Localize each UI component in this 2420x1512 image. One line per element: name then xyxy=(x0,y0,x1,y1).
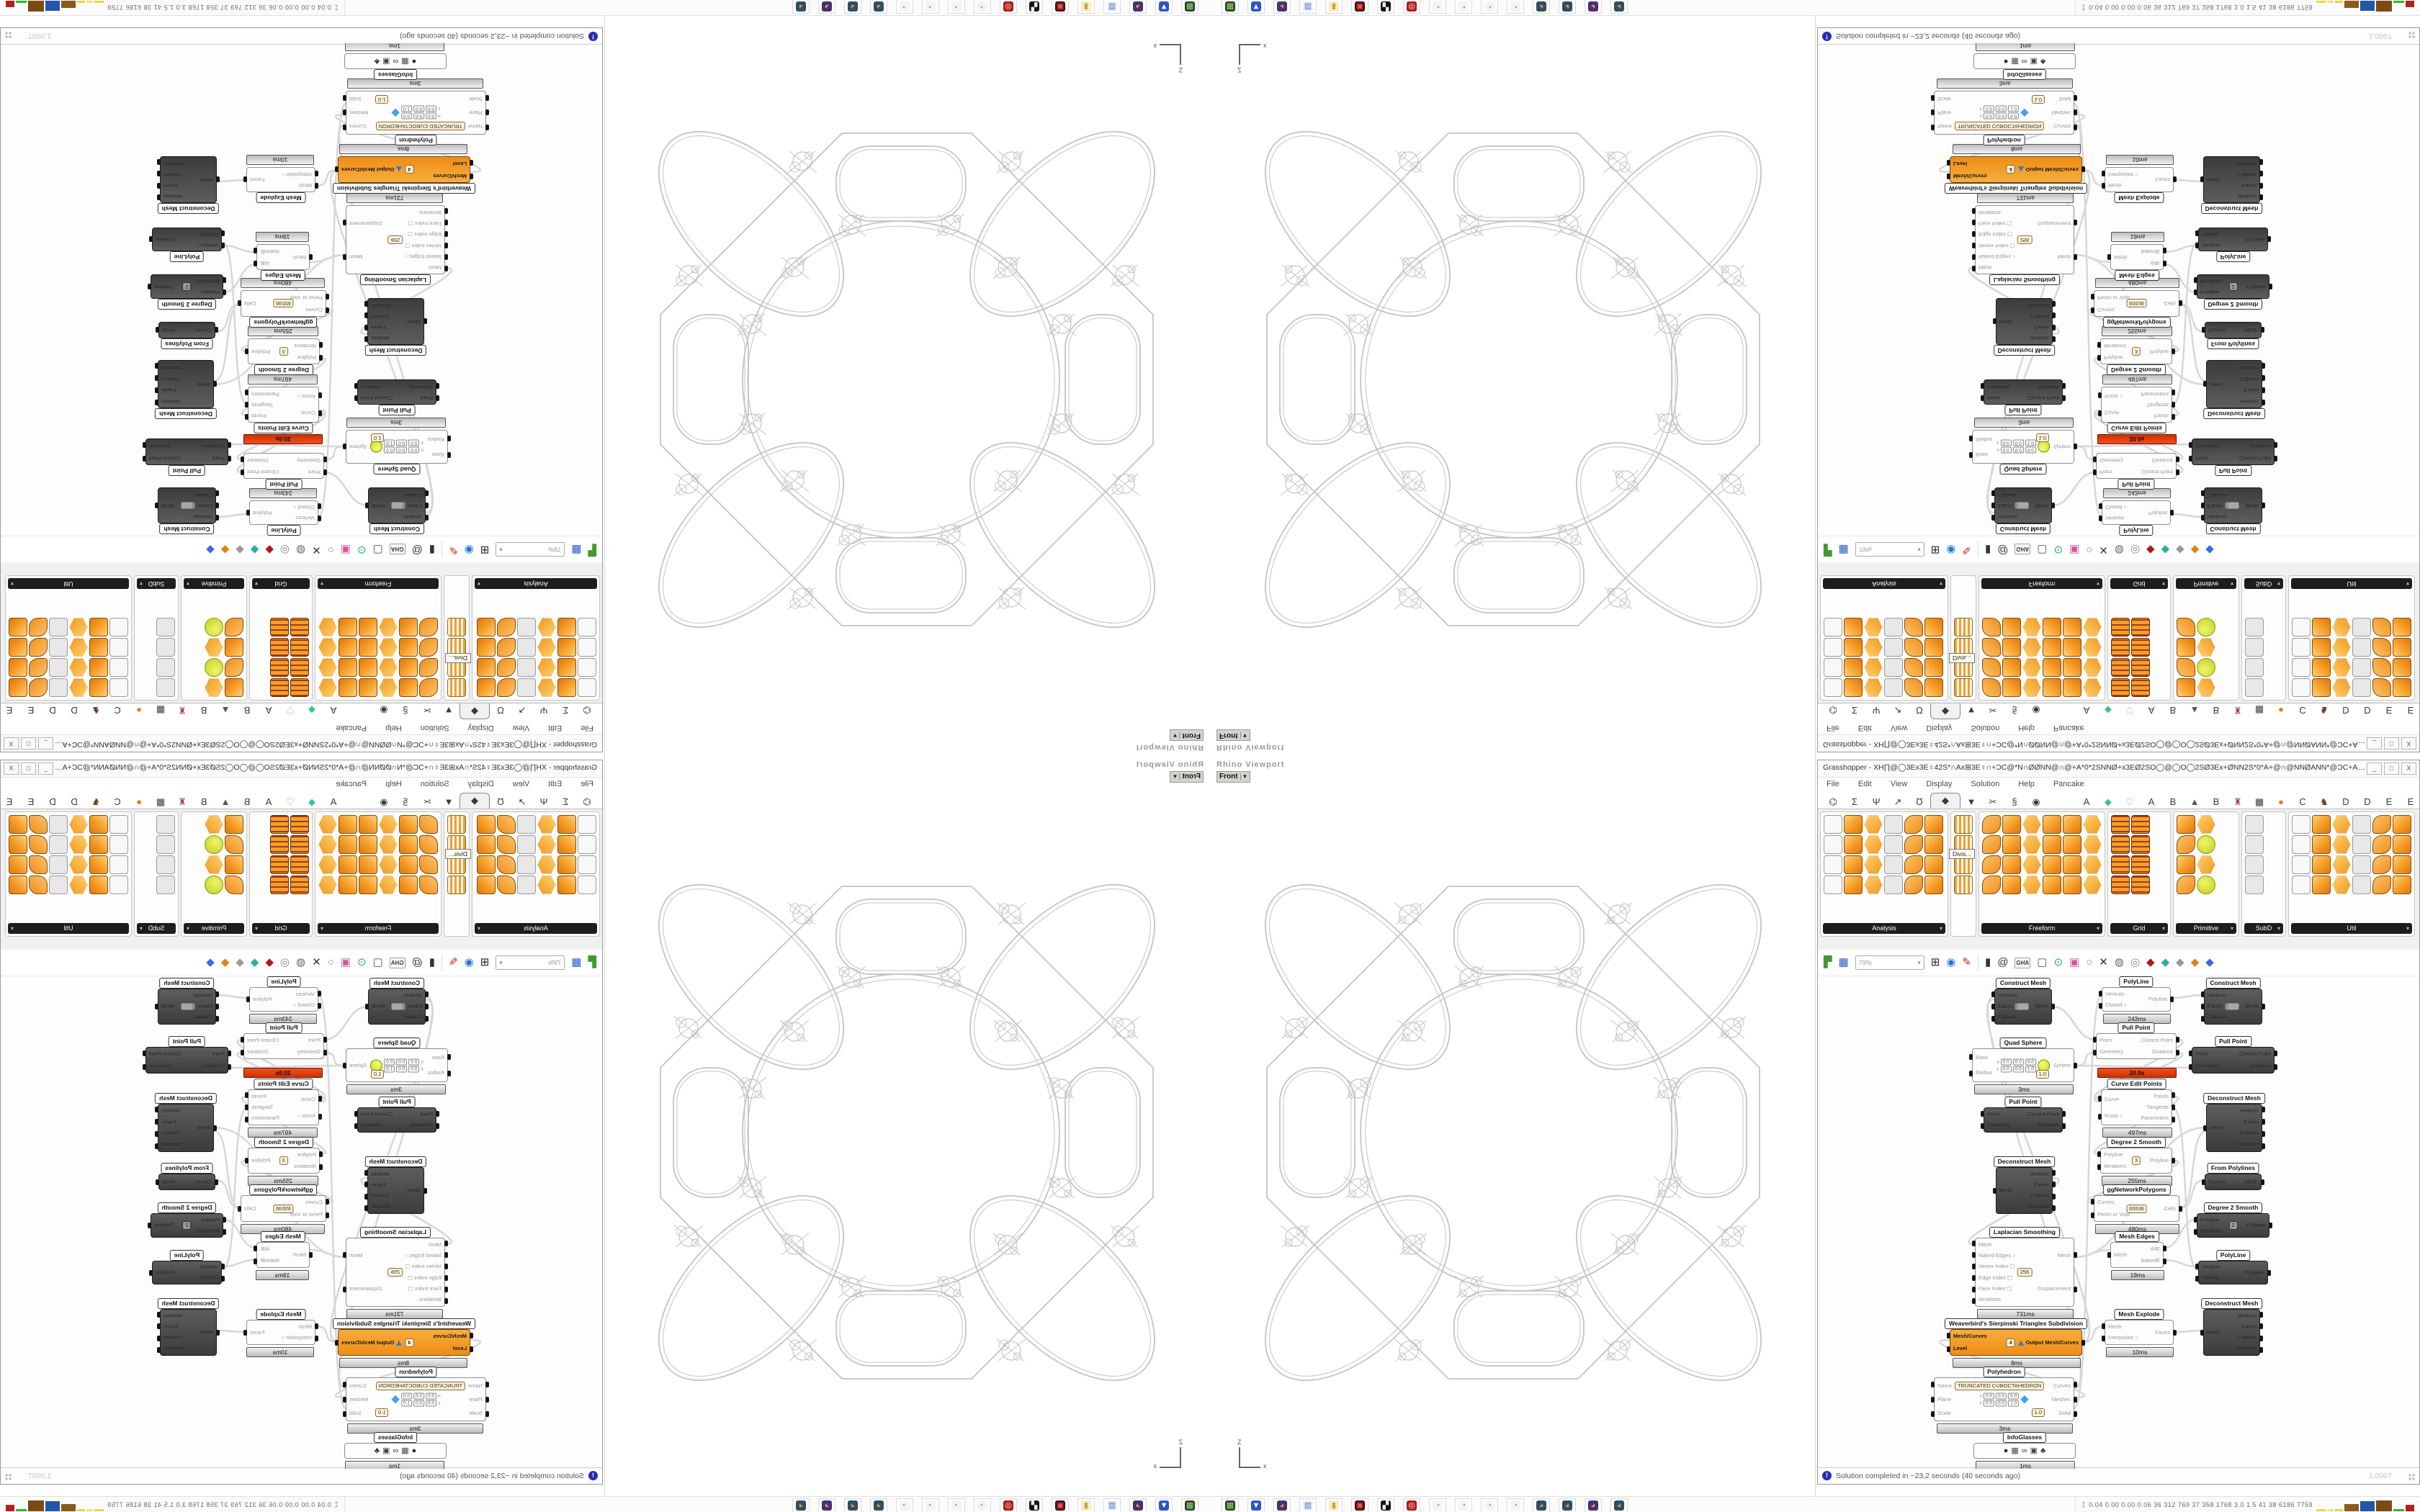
port-grip[interactable] xyxy=(254,1259,257,1264)
input-port[interactable]: Plane xyxy=(469,1397,483,1403)
port-grip[interactable] xyxy=(2074,1397,2077,1403)
panel-dropdown-icon[interactable]: ▾ xyxy=(187,578,189,589)
panel-dropdown-icon[interactable]: ▾ xyxy=(2277,923,2280,934)
gh-node-weaverbird-sierpinski[interactable]: Mesh/CurvesLevelOutput Mesh/Curves4▲ xyxy=(1950,1329,2082,1356)
component-tab-15[interactable]: B xyxy=(236,703,258,717)
taskbar-icon-system-monitor[interactable]: ▦ xyxy=(1222,1498,1239,1512)
panel-dropdown-icon[interactable]: ▾ xyxy=(140,578,143,589)
input-port[interactable]: Mesh xyxy=(408,1188,421,1194)
component-icon[interactable] xyxy=(537,658,556,677)
port-grip[interactable] xyxy=(1993,1188,1996,1194)
component-tab-11[interactable]: A xyxy=(2076,703,2097,717)
port-grip[interactable] xyxy=(1969,1054,1973,1060)
component-icon[interactable] xyxy=(109,835,128,854)
component-icon[interactable] xyxy=(2393,678,2411,697)
component-icon[interactable] xyxy=(2043,618,2061,636)
component-icon[interactable] xyxy=(1904,638,1923,657)
component-tab-2[interactable]: Ψ xyxy=(1865,703,1887,717)
component-tab-18[interactable]: ♜ xyxy=(171,703,193,717)
port-grip[interactable] xyxy=(2267,237,2271,243)
menu-item-edit[interactable]: Edit xyxy=(1858,724,1872,732)
input-port[interactable]: Iterations xyxy=(419,1297,442,1302)
port-grip[interactable] xyxy=(309,1252,313,1258)
panel-dropdown-icon[interactable]: ▾ xyxy=(11,578,14,589)
output-port[interactable]: Closest Point xyxy=(247,469,279,474)
port-grip[interactable] xyxy=(318,1096,322,1102)
rhino-viewport[interactable]: Rhino Viewport Front▼ Z x xyxy=(1210,756,1816,1496)
component-icon[interactable] xyxy=(557,658,576,677)
component-icon[interactable] xyxy=(477,618,496,636)
panel-dropdown-icon[interactable]: ▾ xyxy=(321,923,323,934)
output-port[interactable]: Closest Point xyxy=(149,1051,181,1057)
port-grip[interactable] xyxy=(425,1004,429,1009)
component-icon[interactable] xyxy=(2197,658,2215,677)
iterations-value[interactable]: 2 xyxy=(2228,1221,2237,1230)
camera-icon[interactable]: ◍ xyxy=(2115,543,2124,556)
iterations-value[interactable]: 4 xyxy=(405,166,413,174)
port-grip[interactable] xyxy=(2074,444,2077,450)
name-value[interactable]: TRUNCATED CUBOCTAHEDRON xyxy=(1955,1382,2044,1390)
input-port[interactable]: Face Index ▢ xyxy=(408,220,442,226)
gh-node-mesh-edges[interactable]: MeshAllENakedE xyxy=(2110,244,2164,270)
gh-node-mesh-explode[interactable]: MeshInterpolate ○Faces xyxy=(246,1320,315,1345)
component-tab-13[interactable]: ♡ xyxy=(2119,795,2141,809)
sketch-icon[interactable]: ✎ xyxy=(1962,956,1971,969)
component-icon[interactable] xyxy=(419,618,438,636)
component-icon[interactable] xyxy=(1824,638,1842,657)
port-grip[interactable] xyxy=(2201,1016,2205,1022)
port-grip[interactable] xyxy=(319,1151,323,1157)
component-icon[interactable] xyxy=(290,618,309,636)
port-grip[interactable] xyxy=(444,1275,448,1281)
port-grip[interactable] xyxy=(2074,1411,2077,1417)
component-icon[interactable] xyxy=(2083,855,2102,874)
component-icon[interactable] xyxy=(557,815,576,834)
port-grip[interactable] xyxy=(425,991,429,997)
component-tab-5-selected[interactable]: ◆ xyxy=(460,793,490,809)
port-grip[interactable] xyxy=(354,1111,358,1117)
port-grip[interactable] xyxy=(343,444,346,450)
menu-item-display[interactable]: Display xyxy=(1926,724,1952,732)
gh-node-polyline-mid[interactable]: VerticesClosed ○Polyline xyxy=(2102,987,2171,1012)
port-grip[interactable] xyxy=(2107,1252,2111,1258)
output-port[interactable]: Faces xyxy=(2156,1330,2170,1336)
component-icon[interactable] xyxy=(1982,815,2001,834)
component-icon[interactable] xyxy=(69,638,88,657)
port-grip[interactable] xyxy=(2091,294,2094,300)
output-port[interactable]: Mesh xyxy=(349,253,362,259)
component-icon[interactable] xyxy=(1924,876,1943,894)
component-tab-3[interactable]: ↗ xyxy=(1887,703,1909,717)
port-grip[interactable] xyxy=(436,1123,439,1129)
gh-node-quad-sphere[interactable]: BaseRadiusSphereo0.00.00.0z0.00.01.01.0 xyxy=(346,430,448,464)
taskbar-icon-calculator[interactable]: ▥ xyxy=(1103,0,1121,14)
port-grip[interactable] xyxy=(2201,1004,2205,1009)
pink-box-icon[interactable]: ▣ xyxy=(341,543,351,556)
menu-item-pancake[interactable]: Pancake xyxy=(336,724,367,732)
at-icon[interactable]: @ xyxy=(412,543,423,556)
gh-node-degree-2-smooth-right[interactable]: PolylineIterationsPolyline2 xyxy=(2197,1213,2269,1238)
component-icon[interactable] xyxy=(1924,638,1943,657)
component-icon[interactable] xyxy=(2393,855,2411,874)
port-grip[interactable] xyxy=(2074,1382,2077,1387)
output-port[interactable]: AllE xyxy=(260,1246,269,1252)
port-grip[interactable] xyxy=(238,1206,241,1212)
input-port[interactable]: Colours xyxy=(1998,492,2017,498)
port-grip[interactable] xyxy=(364,1182,368,1187)
output-port[interactable]: Vertices xyxy=(371,1171,390,1177)
component-icon[interactable] xyxy=(497,855,516,874)
output-port[interactable]: Polyline xyxy=(154,1223,173,1228)
output-port[interactable]: Solid xyxy=(2058,96,2071,102)
component-icon[interactable] xyxy=(2312,815,2331,834)
component-icon[interactable] xyxy=(2002,618,2021,636)
port-grip[interactable] xyxy=(343,1411,346,1417)
input-port[interactable]: Mesh xyxy=(1999,319,2012,325)
port-grip[interactable] xyxy=(425,490,429,496)
door-icon[interactable]: ▮ xyxy=(1985,543,1991,556)
gh-node-construct-mesh-right[interactable]: VerticesFacesColoursMesh xyxy=(158,989,216,1025)
output-port[interactable]: Displacement xyxy=(2038,1286,2071,1292)
component-icon[interactable] xyxy=(2372,638,2391,657)
pink-box-icon[interactable]: ▣ xyxy=(2069,956,2079,969)
component-icon[interactable] xyxy=(2352,815,2371,834)
port-grip[interactable] xyxy=(215,1179,218,1185)
port-grip[interactable] xyxy=(2051,1004,2055,1009)
input-port[interactable]: Interpolate ○ xyxy=(282,171,312,177)
component-icon[interactable] xyxy=(2312,638,2331,657)
component-icon[interactable] xyxy=(1844,658,1863,677)
component-icon[interactable] xyxy=(9,618,27,636)
port-grip[interactable] xyxy=(365,1004,369,1009)
component-icon[interactable] xyxy=(557,835,576,854)
component-icon[interactable] xyxy=(339,835,357,854)
port-grip[interactable] xyxy=(326,307,329,313)
component-icon[interactable] xyxy=(2372,855,2391,874)
component-icon[interactable] xyxy=(89,835,108,854)
input-port[interactable]: Iterations xyxy=(2200,279,2223,284)
output-port[interactable]: Solid xyxy=(349,1410,362,1416)
component-icon[interactable] xyxy=(477,815,496,834)
orange-gem-icon[interactable]: ◆ xyxy=(221,956,230,969)
input-port[interactable]: Curves xyxy=(2208,1179,2226,1185)
component-icon[interactable] xyxy=(359,618,377,636)
input-port[interactable]: Geometry xyxy=(2099,1049,2123,1055)
input-port[interactable]: Colours xyxy=(403,492,422,498)
menu-item-help[interactable]: Help xyxy=(385,780,402,788)
component-icon[interactable] xyxy=(2063,835,2081,854)
component-icon[interactable] xyxy=(379,876,398,894)
taskbar-icon-paint-palette[interactable]: ◔ xyxy=(1507,0,1524,14)
port-grip[interactable] xyxy=(155,1004,158,1009)
component-tab-23[interactable]: D xyxy=(2335,795,2357,809)
component-icon[interactable] xyxy=(270,855,289,874)
output-port[interactable]: Faces xyxy=(163,1324,178,1330)
component-tab-4[interactable]: Ʊ xyxy=(490,795,511,809)
taskbar-icon-paint-palette[interactable]: ◔ xyxy=(974,0,991,14)
port-grip[interactable] xyxy=(2259,1347,2263,1353)
component-icon[interactable] xyxy=(2372,678,2391,697)
input-port[interactable]: Mesh xyxy=(2114,254,2127,260)
output-port[interactable]: Polyline xyxy=(2150,1158,2169,1164)
output-port[interactable]: Polyline xyxy=(251,348,270,354)
input-port[interactable]: Geometry xyxy=(409,1122,433,1128)
component-icon[interactable] xyxy=(419,678,438,697)
port-grip[interactable] xyxy=(2052,1170,2056,1176)
input-port[interactable]: Face Index ▢ xyxy=(408,1286,442,1292)
port-grip[interactable] xyxy=(364,1194,368,1200)
port-grip[interactable] xyxy=(245,390,248,395)
port-grip[interactable] xyxy=(2099,1003,2102,1009)
panel-label-freeform[interactable]: Freeform▾ xyxy=(1981,578,2102,589)
component-icon[interactable] xyxy=(318,835,337,854)
component-tab-21[interactable]: C xyxy=(107,795,128,809)
port-grip[interactable] xyxy=(245,348,248,354)
port-grip[interactable] xyxy=(2163,1259,2166,1264)
component-icon[interactable] xyxy=(2043,638,2061,657)
component-tab-17[interactable]: B xyxy=(2205,795,2227,809)
port-grip[interactable] xyxy=(470,174,473,179)
port-grip[interactable] xyxy=(215,490,219,496)
port-grip[interactable] xyxy=(485,125,489,130)
port-grip[interactable] xyxy=(157,159,161,165)
component-icon[interactable] xyxy=(2083,658,2102,677)
menu-item-edit[interactable]: Edit xyxy=(548,724,562,732)
port-grip[interactable] xyxy=(241,1050,244,1056)
taskbar-icon-blender[interactable]: ◕ xyxy=(1559,1498,1576,1512)
at-icon[interactable]: @ xyxy=(412,956,423,969)
port-grip[interactable] xyxy=(2062,1111,2066,1117)
component-icon[interactable] xyxy=(2131,638,2150,657)
port-grip[interactable] xyxy=(1991,515,1995,521)
port-grip[interactable] xyxy=(157,183,161,189)
component-icon[interactable] xyxy=(2063,855,2081,874)
panel-dropdown-icon[interactable]: ▾ xyxy=(2162,578,2165,589)
input-port[interactable]: Faces xyxy=(198,1004,212,1009)
port-grip[interactable] xyxy=(318,991,321,996)
input-port[interactable]: Mesh/Curves xyxy=(433,173,467,179)
save-file-icon[interactable]: ▦ xyxy=(571,956,581,969)
iterations-value[interactable]: 3 xyxy=(2132,347,2141,356)
gh-node-deconstruct-mesh-left[interactable]: MeshVerticesFacesColoursNormals xyxy=(367,298,424,345)
port-grip[interactable] xyxy=(1947,174,1950,179)
port-grip[interactable] xyxy=(245,414,248,420)
component-tab-26[interactable]: E xyxy=(0,795,20,809)
output-port[interactable]: Colours xyxy=(2240,1130,2259,1136)
input-port[interactable]: Closed xyxy=(202,231,218,237)
component-icon[interactable] xyxy=(497,638,516,657)
component-icon[interactable] xyxy=(49,618,68,636)
door-icon[interactable]: ▮ xyxy=(429,543,435,556)
port-grip[interactable] xyxy=(447,1071,451,1076)
gh-node-construct-mesh-left[interactable]: VerticesFacesColoursMesh xyxy=(368,487,426,523)
component-icon[interactable] xyxy=(2043,835,2061,854)
taskbar-icon-folder[interactable]: ▮ xyxy=(1077,1498,1095,1512)
component-icon[interactable] xyxy=(9,876,27,894)
plane-values[interactable]: o0.00.00.0z0.00.01.0 xyxy=(401,1392,441,1406)
component-icon[interactable] xyxy=(205,658,223,677)
port-grip[interactable] xyxy=(156,328,159,333)
input-port[interactable]: Geometry xyxy=(2099,457,2123,463)
gh-node-pull-point-mid[interactable]: PointGeometryClosest PointDistance xyxy=(2096,1033,2177,1059)
taskbar-icon-paint-palette[interactable]: ◔ xyxy=(896,0,913,14)
output-port[interactable]: Colours xyxy=(161,1130,180,1136)
gh-node-mesh-explode[interactable]: MeshInterpolate ○Faces xyxy=(2105,167,2174,192)
taskbar-icon-firefox[interactable]: ◕ xyxy=(1585,1498,1602,1512)
tray-expand-icon[interactable]: ∧∧ xyxy=(2081,1501,2085,1508)
input-port[interactable]: Plane xyxy=(469,110,483,116)
input-port[interactable]: Vertices xyxy=(1998,993,2017,999)
port-grip[interactable] xyxy=(2259,1323,2263,1329)
port-grip[interactable] xyxy=(354,1123,358,1129)
menu-item-help[interactable]: Help xyxy=(385,724,402,732)
port-grip[interactable] xyxy=(2097,1164,2101,1170)
component-tab-8[interactable]: § xyxy=(395,703,416,717)
component-icon[interactable] xyxy=(205,678,223,697)
output-port[interactable]: Colours xyxy=(2240,376,2259,382)
output-port[interactable]: Polyline xyxy=(2246,237,2264,243)
panel-label-util[interactable]: Util▾ xyxy=(8,578,129,589)
input-port[interactable]: Point xyxy=(421,395,433,400)
output-port[interactable]: Tangents xyxy=(2147,1104,2169,1110)
component-icon[interactable] xyxy=(318,678,337,697)
port-grip[interactable] xyxy=(2173,1330,2177,1336)
output-port[interactable]: Output Mesh/Curves xyxy=(341,1340,394,1346)
port-grip[interactable] xyxy=(2091,1199,2094,1205)
taskbar-icon-media-player[interactable]: ▣ xyxy=(1052,0,1069,14)
port-grip[interactable] xyxy=(148,284,151,289)
port-grip[interactable] xyxy=(326,1199,329,1205)
component-tab-12[interactable]: ◆ xyxy=(301,795,323,809)
input-port[interactable]: Level xyxy=(1953,161,1967,166)
input-port[interactable]: Iterations xyxy=(1978,210,2001,215)
component-icon[interactable] xyxy=(1864,658,1883,677)
component-icon[interactable] xyxy=(497,876,516,894)
input-port[interactable]: Radius xyxy=(428,436,444,442)
output-port[interactable]: Vertices xyxy=(2239,398,2259,404)
component-icon[interactable] xyxy=(2177,618,2195,636)
output-port[interactable]: Normals xyxy=(161,1142,181,1148)
port-grip[interactable] xyxy=(436,1111,439,1117)
port-grip[interactable] xyxy=(318,393,322,399)
component-tab-19[interactable]: ▦ xyxy=(150,703,171,717)
component-icon[interactable] xyxy=(419,855,438,874)
input-port[interactable]: Geometry xyxy=(2195,1063,2219,1069)
gh-node-construct-mesh-right[interactable]: VerticesFacesColoursMesh xyxy=(2204,487,2262,523)
gh-node-degree-2-smooth-mid[interactable]: PolylineIterationsPolyline3 xyxy=(248,338,320,364)
component-icon[interactable] xyxy=(29,618,48,636)
port-grip[interactable] xyxy=(2102,183,2105,189)
port-grip[interactable] xyxy=(343,1397,346,1403)
component-icon[interactable] xyxy=(2292,618,2311,636)
chevron-down-icon[interactable]: ▼ xyxy=(1240,732,1248,739)
component-icon[interactable] xyxy=(1924,815,1943,834)
component-tab-7[interactable]: ✂ xyxy=(416,795,438,809)
port-grip[interactable] xyxy=(319,355,323,361)
port-grip[interactable] xyxy=(2176,469,2179,475)
input-port[interactable]: Colours xyxy=(2208,492,2226,498)
output-port[interactable]: Displacement xyxy=(2038,220,2071,226)
input-port[interactable]: Colours xyxy=(403,1014,422,1020)
gh-node-degree-2-smooth-mid[interactable]: PolylineIterationsPolyline3 xyxy=(248,1148,320,1174)
component-icon[interactable] xyxy=(156,855,175,874)
iterations-value[interactable]: 4 xyxy=(2006,1338,2015,1347)
input-port[interactable]: Perim or Void xyxy=(290,1212,323,1218)
input-port[interactable]: Mesh xyxy=(299,1324,312,1330)
component-tab-3[interactable]: ↗ xyxy=(511,795,533,809)
port-grip[interactable] xyxy=(155,1131,158,1137)
galapagos-icon[interactable]: ◆ xyxy=(251,543,259,556)
maximize-button[interactable]: □ xyxy=(2384,737,2399,750)
gh-node-degree-2-smooth-mid[interactable]: PolylineIterationsPolyline3 xyxy=(2100,338,2172,364)
bulb-icon[interactable]: ○ xyxy=(328,543,334,556)
panel-label-util[interactable]: Util▾ xyxy=(2291,578,2412,589)
gha-icon[interactable]: GHA xyxy=(2015,544,2030,555)
menu-item-view[interactable]: View xyxy=(513,780,530,788)
panel-dropdown-icon[interactable]: ▾ xyxy=(1940,923,1942,934)
menu-item-solution[interactable]: Solution xyxy=(1971,724,1999,732)
gh-node-polyline-mid[interactable]: VerticesClosed ○Polyline xyxy=(249,987,318,1012)
output-port[interactable]: Normals xyxy=(161,364,181,370)
component-tab-14[interactable]: A xyxy=(258,703,279,717)
input-port[interactable]: Vertex Index ▢ xyxy=(1978,243,2015,248)
component-icon[interactable] xyxy=(2245,815,2264,834)
port-grip[interactable] xyxy=(1972,1298,1976,1304)
plane-values[interactable]: o0.00.00.0z0.00.01.0 xyxy=(1996,1058,2036,1072)
component-tab-7[interactable]: ✂ xyxy=(1982,703,2004,717)
component-icon[interactable] xyxy=(69,835,88,854)
window-icon[interactable]: ▢ xyxy=(373,956,383,969)
component-tab-20[interactable]: ● xyxy=(128,703,150,717)
port-grip[interactable] xyxy=(143,1064,146,1070)
input-port[interactable]: Vertices xyxy=(2208,513,2227,519)
output-port[interactable]: Distance xyxy=(2038,1122,2059,1128)
window-icon[interactable]: ▢ xyxy=(2037,543,2047,556)
port-grip[interactable] xyxy=(485,1397,489,1403)
port-grip[interactable] xyxy=(2093,456,2097,462)
input-port[interactable]: Edge Index ▢ xyxy=(1978,1275,2012,1281)
menu-item-pancake[interactable]: Pancake xyxy=(2053,724,2084,732)
gh-node-laplacian-smoothing[interactable]: MeshNaked Edges ○Vertex Index ▢Edge Inde… xyxy=(346,205,445,274)
port-grip[interactable] xyxy=(1991,991,1995,997)
red-gem-icon[interactable]: ◆ xyxy=(265,543,274,556)
component-icon[interactable] xyxy=(379,638,398,657)
component-icon[interactable] xyxy=(2022,658,2041,677)
gha-icon[interactable]: GHA xyxy=(390,958,405,968)
component-icon[interactable] xyxy=(2332,815,2351,834)
component-icon[interactable] xyxy=(89,638,108,657)
panel-dropdown-icon[interactable]: ▾ xyxy=(2097,578,2099,589)
taskbar-icon-paint-palette[interactable]: ◔ xyxy=(922,0,939,14)
component-icon[interactable] xyxy=(2292,855,2311,874)
resize-grip[interactable] xyxy=(4,1473,12,1482)
output-port[interactable]: Closest Point xyxy=(361,1112,393,1117)
port-grip[interactable] xyxy=(318,1114,322,1120)
output-port[interactable]: Parameters xyxy=(251,391,279,397)
gray-gem-icon[interactable]: ◆ xyxy=(236,543,244,556)
plane-values[interactable]: o0.00.00.0z0.00.01.0 xyxy=(1979,106,2019,120)
taskbar-icon-floppy-drive[interactable]: ▼ xyxy=(1247,0,1265,14)
input-port[interactable]: Geometry xyxy=(297,457,321,463)
port-grip[interactable] xyxy=(1931,1397,1935,1403)
component-icon[interactable] xyxy=(419,815,438,834)
gh-node-pull-point-left[interactable]: PointGeometryClosest PointDistance xyxy=(357,379,436,405)
input-port[interactable]: Curve xyxy=(301,1097,315,1102)
component-tab-14[interactable]: A xyxy=(2141,795,2162,809)
output-port[interactable]: Distance xyxy=(361,1122,382,1128)
component-tab-25[interactable]: E xyxy=(2378,795,2400,809)
iterations-value[interactable]: 2 xyxy=(182,282,191,291)
